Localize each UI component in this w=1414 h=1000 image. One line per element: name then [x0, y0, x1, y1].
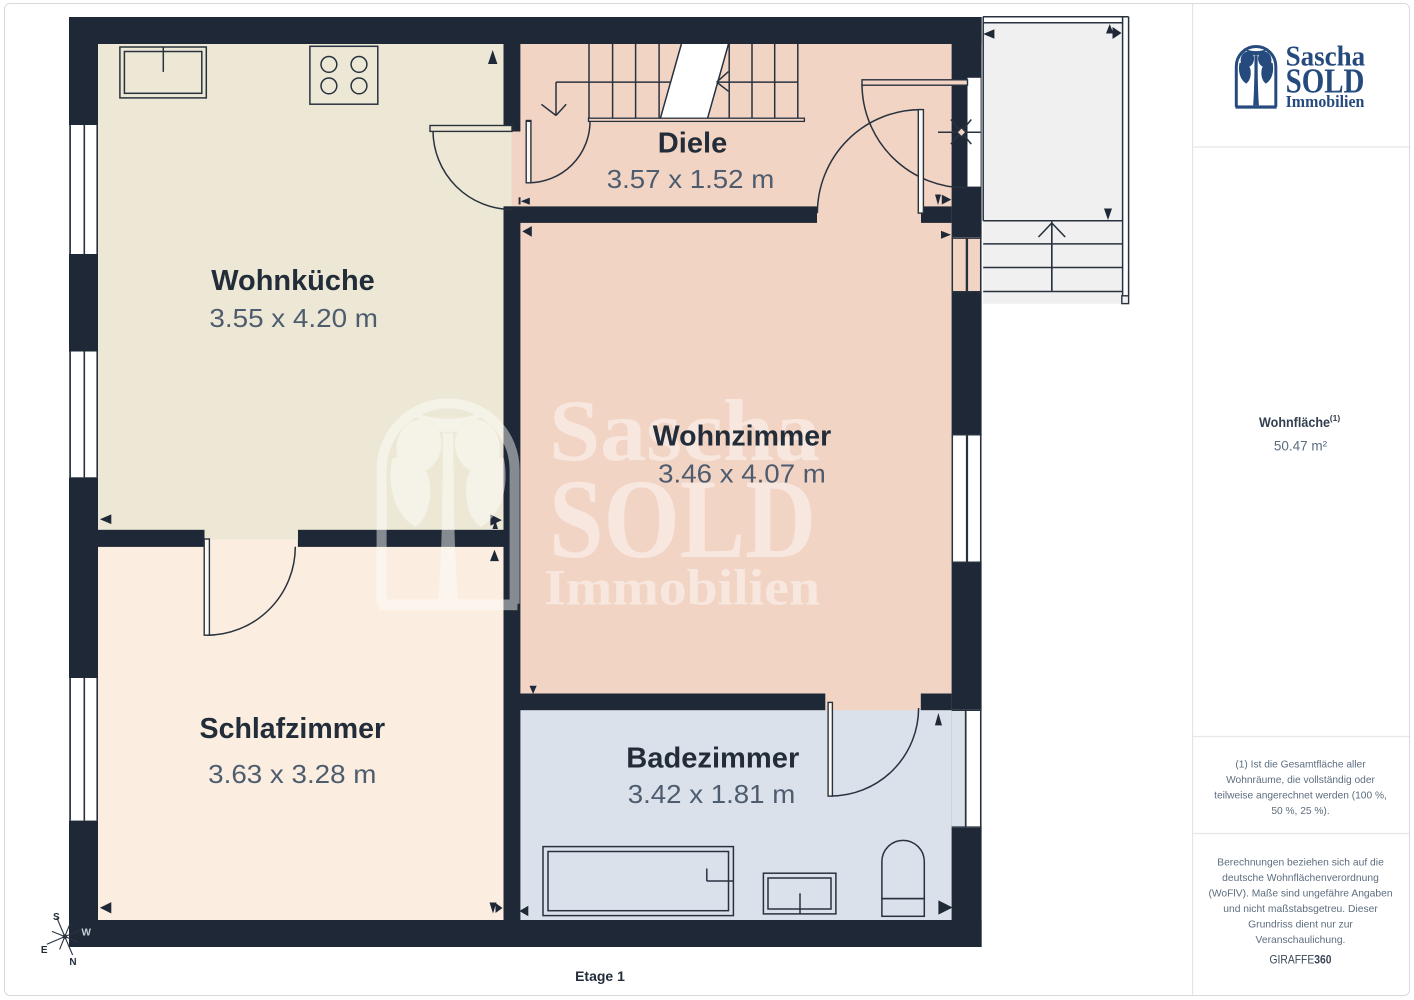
svg-text:50 %, 25 %).: 50 %, 25 %). [1271, 806, 1329, 817]
svg-text:(WoFlV). Maße sind ungefähre A: (WoFlV). Maße sind ungefähre Angaben [1208, 888, 1392, 899]
svg-text:Wohnküche: Wohnküche [211, 265, 375, 297]
svg-text:Immobilien: Immobilien [544, 561, 820, 617]
svg-text:S: S [53, 912, 60, 923]
svg-text:Immobilien: Immobilien [1286, 92, 1365, 111]
svg-text:3.42 x 1.81 m: 3.42 x 1.81 m [628, 779, 796, 809]
svg-text:Schlafzimmer: Schlafzimmer [200, 713, 386, 745]
svg-text:Grundriss dient nur zur: Grundriss dient nur zur [1248, 919, 1353, 930]
svg-text:Etage 1: Etage 1 [575, 968, 625, 984]
svg-text:N: N [69, 957, 76, 968]
svg-text:GIRAFFE360: GIRAFFE360 [1270, 953, 1332, 967]
svg-text:teilweise angerechnet werden (: teilweise angerechnet werden (100 %, [1214, 791, 1387, 802]
svg-text:Veranschaulichung.: Veranschaulichung. [1256, 935, 1346, 946]
svg-text:Wohnzimmer: Wohnzimmer [653, 421, 832, 453]
svg-text:Wohnfläche: Wohnfläche [1259, 414, 1330, 430]
svg-text:deutsche Wohnflächenverordnung: deutsche Wohnflächenverordnung [1222, 873, 1379, 884]
svg-text:Wohnräume, die vollständig ode: Wohnräume, die vollständig oder [1226, 775, 1375, 786]
svg-text:E: E [41, 945, 48, 956]
svg-text:3.57 x 1.52 m: 3.57 x 1.52 m [607, 164, 775, 194]
svg-text:50.47 m²: 50.47 m² [1274, 438, 1328, 453]
svg-text:W: W [81, 928, 91, 939]
svg-text:3.63 x 3.28 m: 3.63 x 3.28 m [208, 759, 376, 789]
svg-text:(1): (1) [1330, 413, 1341, 423]
svg-text:Berechnungen beziehen sich auf: Berechnungen beziehen sich auf die [1217, 857, 1384, 868]
svg-text:und nicht maßstabsgetreu. Dies: und nicht maßstabsgetreu. Dieser [1223, 904, 1378, 915]
svg-text:Badezimmer: Badezimmer [626, 742, 799, 774]
svg-text:3.55 x 4.20 m: 3.55 x 4.20 m [209, 303, 378, 333]
svg-text:3.46 x 4.07 m: 3.46 x 4.07 m [658, 459, 826, 489]
svg-text:(1) Ist die Gesamtfläche aller: (1) Ist die Gesamtfläche aller [1235, 759, 1366, 770]
svg-text:Diele: Diele [658, 127, 728, 159]
